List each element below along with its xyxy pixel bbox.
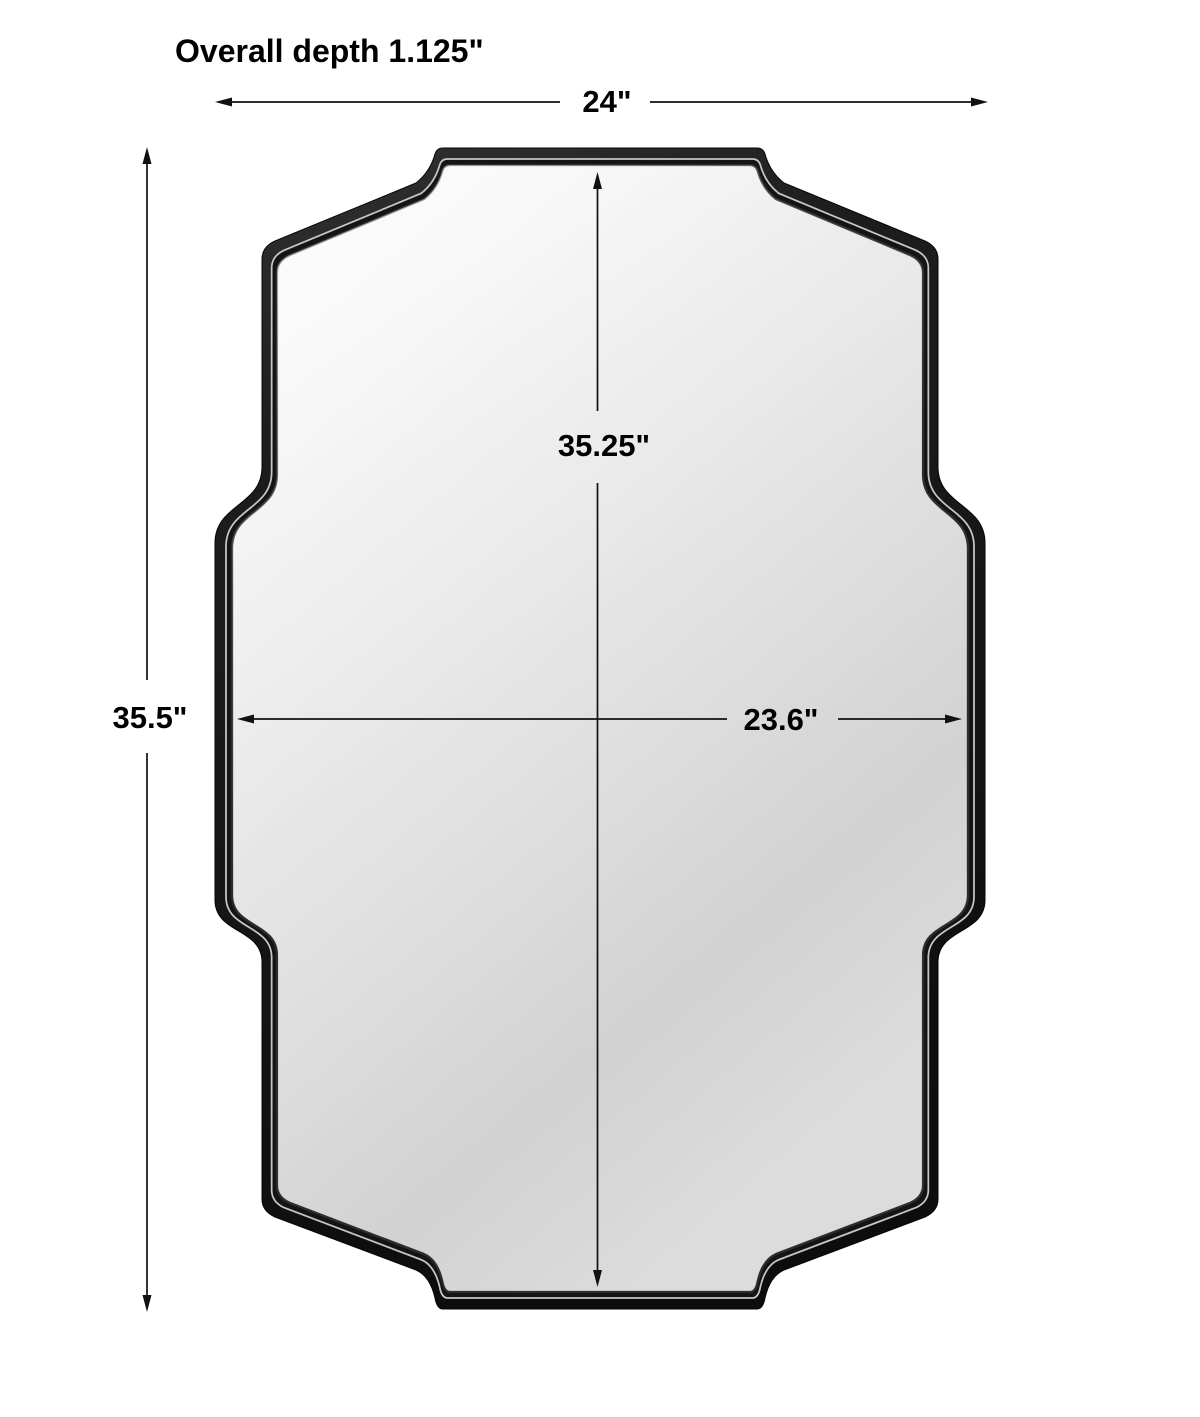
mirror-dimension-diagram: 24" 35.5" 35.25" 23.6" Overall dept [0,0,1200,1417]
overall-width-dimension: 24" [215,84,988,119]
diagram-canvas: 24" 35.5" 35.25" 23.6" Overall dept [0,0,1200,1417]
overall-width-label: 24" [582,84,631,119]
overall-height-dimension: 35.5" [112,147,187,1312]
arrowhead-right-icon [971,98,988,107]
glass-sheen [232,165,968,1292]
mirror-width-label: 23.6" [743,702,818,737]
mirror-height-label: 35.25" [558,428,650,463]
overall-height-label: 35.5" [112,700,187,735]
depth-note: Overall depth 1.125" [175,33,484,69]
mirror [215,148,985,1309]
arrowhead-down-icon [143,1295,152,1312]
